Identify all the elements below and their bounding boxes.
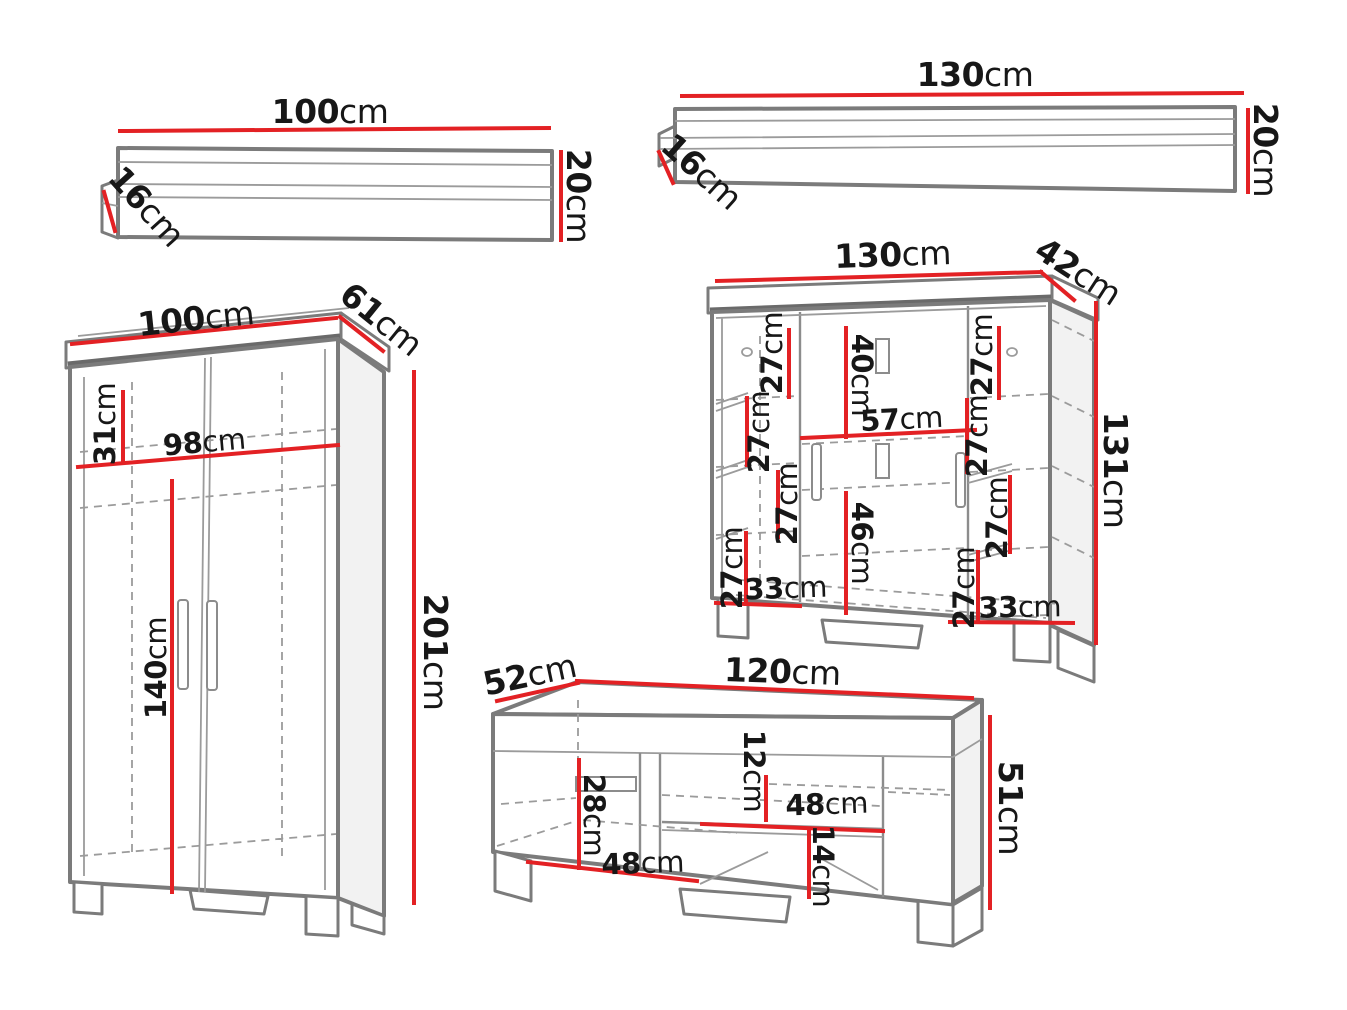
dim-value: 31 <box>88 426 122 465</box>
dim-unit: cm <box>559 194 598 243</box>
dim-label-cabinet-left-section-3: 27cm <box>770 463 804 546</box>
dim-label-wardrobe-interior-width: 98cm <box>162 422 247 463</box>
wardrobe-right-door-handle <box>207 601 217 690</box>
dim-unit: cm <box>899 400 944 436</box>
dim-label-cabinet-bottom-door: 46cm <box>845 502 879 585</box>
dim-label-tv-left-interior-width: 48cm <box>601 845 685 882</box>
dim-value: 130 <box>834 235 903 276</box>
dim-label-cabinet-right-section-2: 27cm <box>960 395 994 478</box>
dim-value: 46 <box>845 502 879 541</box>
dim-label-tv-height: 51cm <box>991 761 1030 855</box>
dim-unit: cm <box>755 312 789 355</box>
wall-shelf-large: 130cm 20cm 16cm <box>654 55 1285 217</box>
cabinet-bottom-door-handle <box>812 444 821 500</box>
wardrobe-left-door-handle <box>178 600 188 689</box>
dim-label-cabinet-width: 130cm <box>834 233 952 276</box>
dim-unit: cm <box>201 422 247 460</box>
dim-label-cabinet-right-bottom-width: 33cm <box>978 589 1061 624</box>
dim-value: 120 <box>723 650 792 691</box>
dim-label-shelf-small-width: 100cm <box>272 92 389 131</box>
dim-value: 48 <box>785 787 826 822</box>
dim-label-shelf-large-width: 130cm <box>917 55 1034 94</box>
dim-value: 100 <box>136 298 207 344</box>
dim-value: 33 <box>744 571 785 606</box>
dim-unit: cm <box>806 864 840 907</box>
dim-value: 14 <box>806 825 840 864</box>
furniture-dimensions-diagram: 100cm 20cm 16cm 130cm 20cm 16cm 100cm <box>0 0 1347 1010</box>
wardrobe: 100cm 61cm 31cm 98cm 140cm 201cm <box>66 274 455 936</box>
wardrobe-side-face <box>338 339 384 916</box>
dim-unit: cm <box>960 395 994 438</box>
dim-value: 51 <box>991 761 1030 806</box>
dim-label-cabinet-middle-width: 57cm <box>859 400 943 438</box>
dim-value: 28 <box>577 774 611 813</box>
dim-value: 20 <box>1246 103 1285 148</box>
dim-unit: cm <box>991 806 1030 855</box>
dim-unit: cm <box>88 383 122 426</box>
dim-unit: cm <box>416 661 455 710</box>
dim-unit: cm <box>742 391 776 434</box>
dim-value: 40 <box>845 334 879 373</box>
dim-label-cabinet-left-section-2: 27cm <box>742 391 776 474</box>
dim-label-shelf-small-height: 20cm <box>559 149 598 243</box>
dim-label-wardrobe-top-compartment: 31cm <box>88 383 122 466</box>
dim-value: 27 <box>980 520 1014 559</box>
dim-label-tv-left-door: 28cm <box>577 774 611 857</box>
dim-unit: cm <box>737 769 771 812</box>
dim-label-cabinet-left-bottom-width: 33cm <box>744 570 828 607</box>
dim-value: 20 <box>559 149 598 194</box>
dim-unit: cm <box>640 845 684 880</box>
dim-value: 140 <box>139 660 173 719</box>
dim-value: 100 <box>272 92 339 131</box>
dim-unit: cm <box>203 293 256 337</box>
dim-unit: cm <box>1246 148 1285 197</box>
dim-label-tv-niche-offset: 12cm <box>737 730 771 813</box>
dim-unit: cm <box>715 527 749 570</box>
dim-label-cabinet-left-section-1: 27cm <box>755 312 789 395</box>
dim-unit: cm <box>965 314 999 357</box>
dim-unit: cm <box>980 477 1014 520</box>
dim-value: 48 <box>601 846 642 881</box>
dim-unit: cm <box>845 541 879 584</box>
dim-label-cabinet-right-section-4: 27cm <box>947 547 981 630</box>
dim-value: 33 <box>978 590 1018 625</box>
dim-unit: cm <box>901 233 952 274</box>
dim-unit: cm <box>339 92 388 131</box>
diagram-svg: 100cm 20cm 16cm 130cm 20cm 16cm 100cm <box>0 0 1347 1010</box>
dim-label-wardrobe-height: 201cm <box>416 594 455 711</box>
dim-value: 27 <box>755 355 789 394</box>
dim-value: 131 <box>1096 412 1135 479</box>
dim-unit: cm <box>984 55 1033 94</box>
dim-unit: cm <box>783 570 827 605</box>
dim-unit: cm <box>1018 589 1062 624</box>
dim-unit: cm <box>1096 479 1135 528</box>
dim-label-shelf-large-height: 20cm <box>1246 103 1285 197</box>
dim-value: 12 <box>737 730 771 769</box>
dim-unit: cm <box>824 786 868 821</box>
dim-value: 130 <box>917 55 984 94</box>
dim-label-cabinet-height: 131cm <box>1096 412 1135 529</box>
sideboard-cabinet: 130cm 42cm 131cm 40cm 57cm 46cm 27cm 27c… <box>708 229 1135 682</box>
dim-unit: cm <box>770 463 804 506</box>
wall-shelf-small: 100cm 20cm 16cm <box>101 92 598 254</box>
dim-value: 27 <box>960 438 994 477</box>
dim-value: 27 <box>947 590 981 629</box>
dim-value: 27 <box>965 357 999 396</box>
dim-unit: cm <box>139 617 173 660</box>
dim-value: 27 <box>770 506 804 545</box>
dim-unit: cm <box>947 547 981 590</box>
dim-value: 57 <box>859 402 900 438</box>
dim-value: 201 <box>416 594 455 661</box>
dim-label-wardrobe-interior-height: 140cm <box>139 617 173 719</box>
tv-stand-side-face <box>953 700 982 903</box>
dim-label-tv-base-height: 14cm <box>806 825 840 908</box>
dim-label-tv-width: 120cm <box>723 650 841 693</box>
dim-label-tv-niche-width: 48cm <box>785 786 869 823</box>
cabinet-drawer-handle <box>876 444 889 478</box>
dim-label-cabinet-right-section-3: 27cm <box>980 477 1014 560</box>
dim-value: 98 <box>162 425 204 462</box>
dim-unit: cm <box>791 652 842 693</box>
tv-stand: 52cm 120cm 51cm 28cm 12cm 48cm 14cm 48cm <box>479 646 1030 946</box>
dim-label-cabinet-right-section-1: 27cm <box>965 314 999 397</box>
